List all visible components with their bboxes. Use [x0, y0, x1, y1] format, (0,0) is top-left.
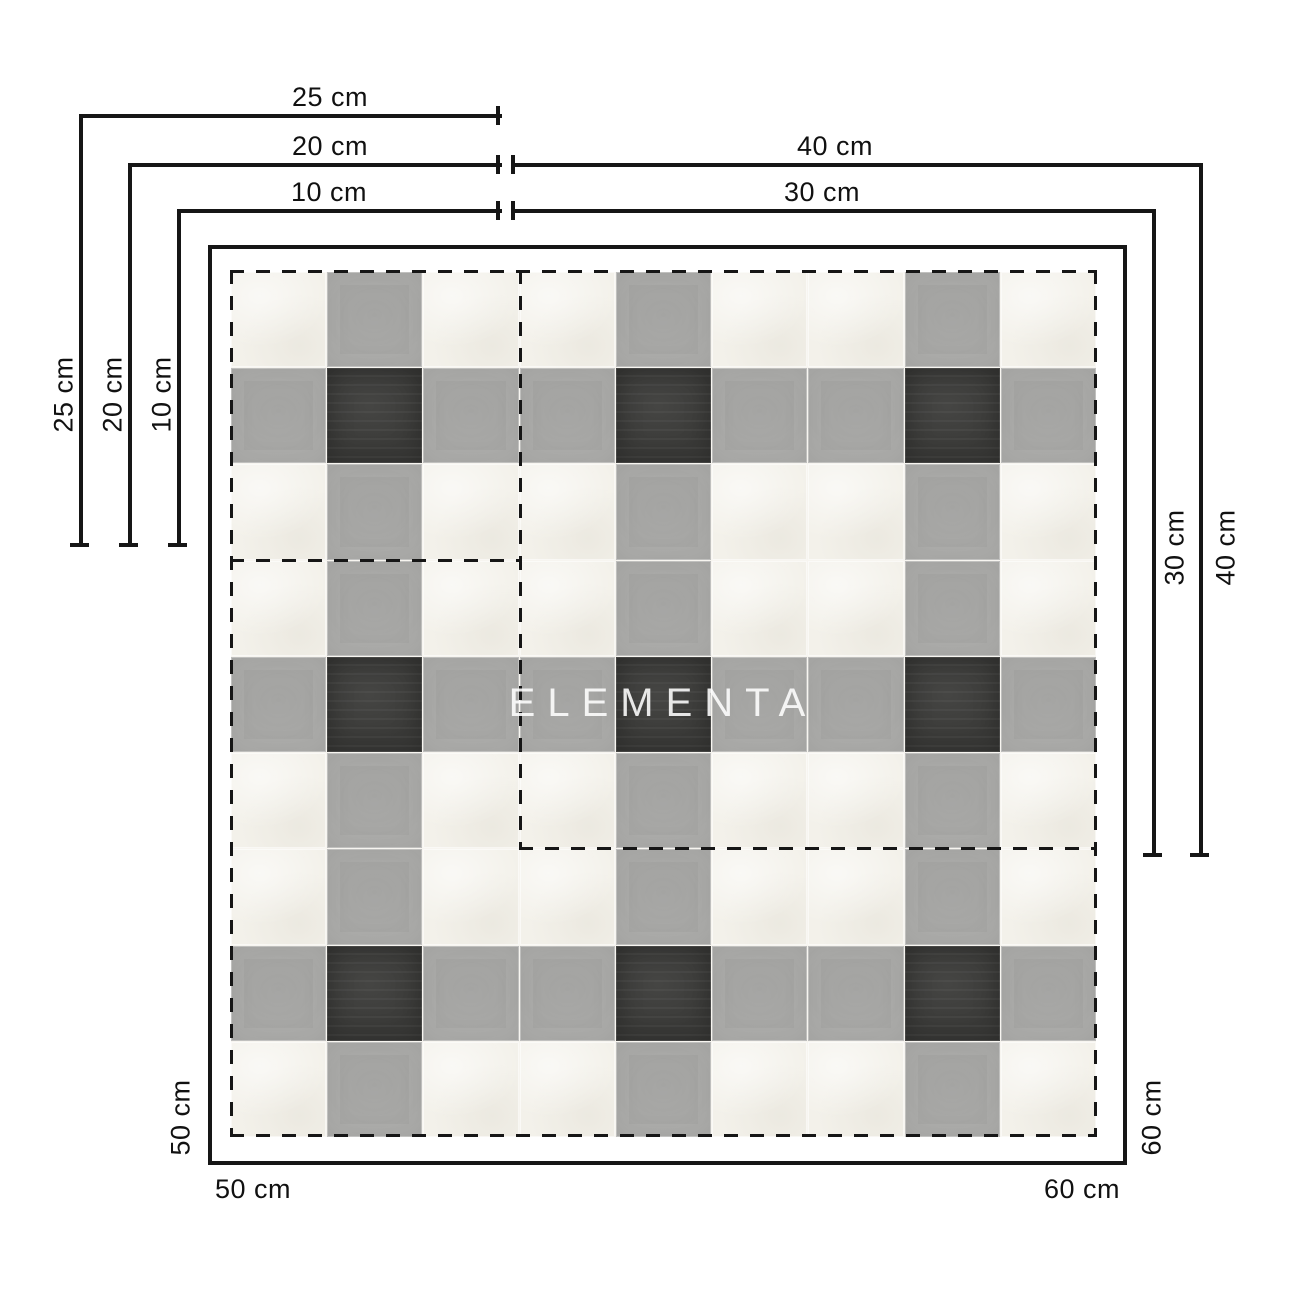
tile-cell: [520, 561, 615, 656]
tile-cell: [905, 849, 1000, 944]
dim-20cm-top-label: 20 cm: [255, 133, 405, 160]
tile-cell: [905, 272, 1000, 367]
tile-cell: [808, 561, 903, 656]
tile-cell: [423, 849, 518, 944]
tile-cell: [327, 1042, 422, 1137]
tile-cell: [423, 1042, 518, 1137]
tile-cell: [616, 1042, 711, 1137]
dim-25cm-horizontal-line: [79, 114, 502, 118]
tile-cell: [1001, 657, 1096, 752]
tile-cell: [231, 849, 326, 944]
dim-40cm-horizontal-line: [515, 163, 1203, 167]
dim-25cm-vertical-end-tick: [70, 543, 89, 547]
tile-cell: [520, 272, 615, 367]
dim-60cm-side-label: 60 cm: [1139, 1058, 1166, 1178]
tile-cell: [712, 464, 807, 559]
tile-cell: [520, 368, 615, 463]
tile-cell: [905, 946, 1000, 1041]
tile-cell: [231, 561, 326, 656]
tile-size-guide-canvas: ELEMENTA 25 cm 25 cm 20 cm 20 cm 10 cm 1…: [0, 0, 1291, 1291]
dashed-outline-bottom: [230, 1134, 1097, 1137]
tile-cell: [520, 753, 615, 848]
tile-cell: [520, 464, 615, 559]
dim-30cm-horizontal-line: [515, 209, 1156, 213]
tile-cell: [327, 657, 422, 752]
tile-cell: [616, 272, 711, 367]
tile-cell: [231, 368, 326, 463]
tile-cell: [327, 753, 422, 848]
tile-cell: [327, 368, 422, 463]
dashed-outline-top: [230, 270, 1097, 273]
tile-cell: [712, 561, 807, 656]
dim-50cm-side-label: 50 cm: [168, 1058, 195, 1178]
tile-cell: [231, 464, 326, 559]
tile-cell: [520, 1042, 615, 1137]
tile-cell: [327, 849, 422, 944]
dim-30cm-vertical-end-tick: [1143, 853, 1162, 857]
tile-cell: [905, 753, 1000, 848]
dim-10cm-top-label: 10 cm: [254, 179, 404, 206]
dim-10cm-vertical-end-tick: [168, 543, 187, 547]
dashed-medium-box-bottom: [519, 847, 1097, 850]
watermark-text: ELEMENTA: [413, 677, 913, 729]
tile-cell: [1001, 464, 1096, 559]
tile-cell: [712, 272, 807, 367]
dim-25cm-horizontal-end-tick: [496, 106, 500, 125]
tile-cell: [808, 1042, 903, 1137]
tile-cell: [616, 849, 711, 944]
dim-30cm-side-label: 30 cm: [1162, 488, 1189, 608]
dim-40cm-vertical-end-tick: [1190, 853, 1209, 857]
dashed-outline-left: [230, 270, 233, 1137]
tile-cell: [1001, 368, 1096, 463]
tile-cell: [1001, 946, 1096, 1041]
dim-50cm-bottom-label: 50 cm: [178, 1176, 328, 1203]
tile-cell: [905, 464, 1000, 559]
dashed-outline-right: [1094, 270, 1097, 1137]
tile-cell: [616, 561, 711, 656]
tile-cell: [712, 849, 807, 944]
tile-cell: [712, 1042, 807, 1137]
tile-cell: [616, 753, 711, 848]
dim-40cm-side-label: 40 cm: [1213, 488, 1240, 608]
tile-cell: [423, 753, 518, 848]
tile-cell: [1001, 561, 1096, 656]
tile-cell: [808, 464, 903, 559]
dim-10cm-horizontal-line: [177, 209, 502, 213]
tile-cell: [905, 657, 1000, 752]
tile-cell: [1001, 1042, 1096, 1137]
dim-10cm-vertical-line: [177, 209, 181, 547]
tile-cell: [808, 849, 903, 944]
tile-cell: [423, 946, 518, 1041]
dim-30cm-top-label: 30 cm: [747, 179, 897, 206]
tile-cell: [423, 561, 518, 656]
tile-cell: [712, 368, 807, 463]
dashed-small-box-bottom: [230, 559, 522, 562]
tile-cell: [327, 272, 422, 367]
tile-cell: [231, 657, 326, 752]
tile-cell: [423, 272, 518, 367]
dim-20cm-side-label: 20 cm: [100, 335, 127, 455]
tile-cell: [1001, 753, 1096, 848]
tile-cell: [808, 946, 903, 1041]
dim-25cm-vertical-line: [79, 114, 83, 547]
tile-cell: [616, 464, 711, 559]
tile-cell: [808, 272, 903, 367]
dashed-medium-box-left: [519, 270, 522, 850]
tile-cell: [712, 753, 807, 848]
dim-25cm-side-label: 25 cm: [51, 335, 78, 455]
dim-30cm-vertical-line: [1152, 209, 1156, 857]
dim-20cm-horizontal-end-tick: [496, 155, 500, 174]
dim-60cm-bottom-label: 60 cm: [1007, 1176, 1157, 1203]
tile-cell: [1001, 272, 1096, 367]
tile-cell: [520, 946, 615, 1041]
tile-cell: [808, 368, 903, 463]
dim-20cm-vertical-end-tick: [119, 543, 138, 547]
tile-cell: [327, 946, 422, 1041]
tile-cell: [231, 1042, 326, 1137]
tile-cell: [905, 1042, 1000, 1137]
tile-cell: [520, 849, 615, 944]
dim-40cm-vertical-line: [1199, 163, 1203, 857]
dim-20cm-horizontal-line: [128, 163, 502, 167]
tile-cell: [231, 753, 326, 848]
dim-40cm-top-label: 40 cm: [760, 133, 910, 160]
tile-cell: [327, 561, 422, 656]
tile-cell: [712, 946, 807, 1041]
tile-cell: [808, 753, 903, 848]
tile-cell: [423, 368, 518, 463]
tile-cell: [905, 368, 1000, 463]
tile-cell: [616, 368, 711, 463]
dim-10cm-horizontal-end-tick: [496, 201, 500, 220]
tile-cell: [231, 272, 326, 367]
tile-cell: [327, 464, 422, 559]
tile-cell: [1001, 849, 1096, 944]
tile-cell: [905, 561, 1000, 656]
dim-10cm-side-label: 10 cm: [149, 335, 176, 455]
tile-cell: [616, 946, 711, 1041]
dim-20cm-vertical-line: [128, 163, 132, 547]
tile-cell: [423, 464, 518, 559]
dim-25cm-top-label: 25 cm: [255, 84, 405, 111]
tile-cell: [231, 946, 326, 1041]
